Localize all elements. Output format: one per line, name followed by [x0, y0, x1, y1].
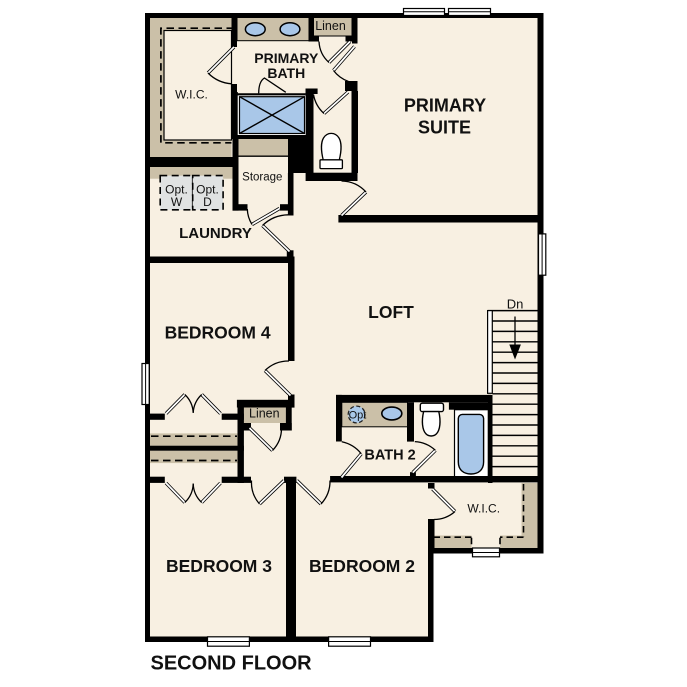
svg-text:W: W [171, 195, 183, 209]
svg-text:BATH 2: BATH 2 [364, 448, 415, 464]
svg-text:BEDROOM 3: BEDROOM 3 [166, 556, 272, 576]
svg-text:BEDROOM 4: BEDROOM 4 [165, 323, 271, 343]
svg-text:Opt: Opt [349, 409, 367, 421]
svg-text:BATH: BATH [267, 65, 305, 81]
svg-text:W.I.C.: W.I.C. [175, 88, 208, 102]
svg-text:SUITE: SUITE [418, 118, 471, 138]
svg-text:W.I.C.: W.I.C. [467, 502, 500, 516]
svg-text:PRIMARY: PRIMARY [254, 50, 319, 66]
svg-text:LOFT: LOFT [368, 302, 414, 322]
svg-text:PRIMARY: PRIMARY [404, 96, 486, 116]
svg-text:SECOND FLOOR: SECOND FLOOR [151, 653, 313, 675]
svg-text:Storage: Storage [242, 172, 282, 184]
svg-text:Linen: Linen [249, 407, 280, 421]
svg-text:LAUNDRY: LAUNDRY [179, 225, 252, 242]
svg-text:D: D [203, 195, 212, 209]
svg-text:Linen: Linen [315, 19, 346, 33]
svg-text:Dn: Dn [507, 297, 524, 312]
svg-text:BEDROOM 2: BEDROOM 2 [309, 556, 415, 576]
